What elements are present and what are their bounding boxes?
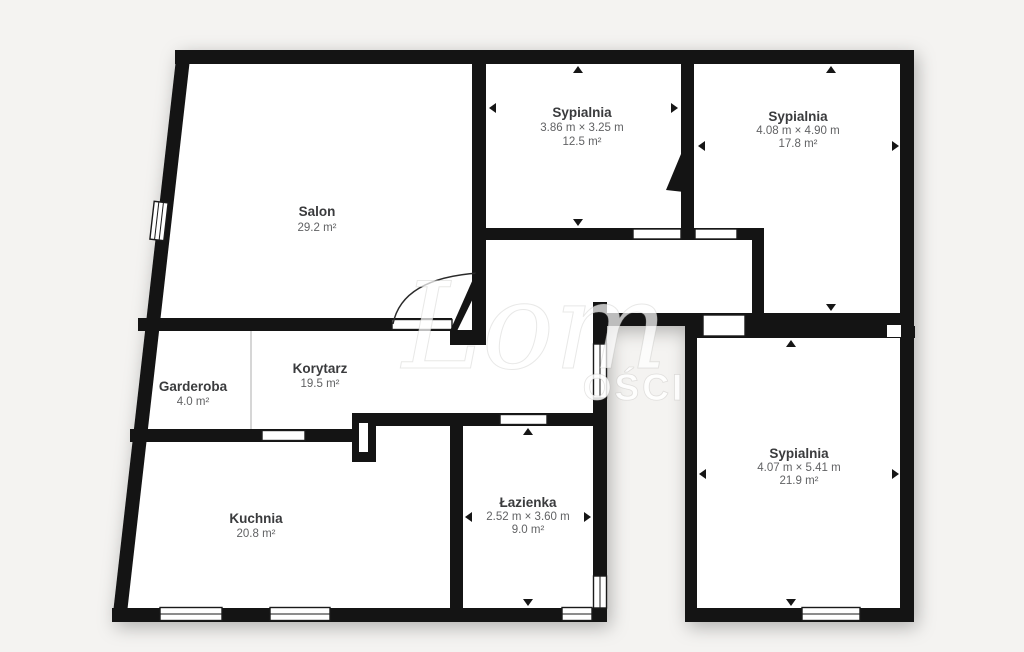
room-dims: 2.52 m × 3.60 m <box>486 511 569 523</box>
room-area: 17.8 m² <box>779 138 818 150</box>
floor-plan-canvas: Salon 29.2 m² Sypialnia 3.86 m × 3.25 m … <box>0 0 1024 652</box>
room-area: 29.2 m² <box>298 222 337 234</box>
room-name: Korytarz <box>293 361 348 376</box>
room-area: 19.5 m² <box>301 378 340 390</box>
room-name: Sypialnia <box>769 446 829 461</box>
room-dims: 3.86 m × 3.25 m <box>540 122 623 134</box>
rightwing-bottom-wall <box>685 608 914 622</box>
watermark-caps-text: OŚCI <box>583 366 685 408</box>
room-label-kuchnia: Kuchnia 20.8 m² <box>229 511 283 540</box>
kuchnia-door-opening <box>262 431 305 441</box>
bedroom1-door-opening <box>633 229 681 239</box>
room-area: 9.0 m² <box>512 524 545 536</box>
bedroom1-bedroom2-wall <box>681 50 694 238</box>
room-name: Sypialnia <box>552 105 612 120</box>
rightwing-left-wall <box>685 326 697 622</box>
watermark: Lom OŚCI <box>400 258 685 408</box>
room-dims: 4.08 m × 4.90 m <box>756 125 839 137</box>
room-name: Garderoba <box>159 379 228 394</box>
top-wall <box>175 50 914 64</box>
wall-notch <box>887 325 901 337</box>
room-label-korytarz: Korytarz 19.5 m² <box>293 361 348 390</box>
lazienka-door-opening <box>500 415 547 425</box>
room-area: 20.8 m² <box>237 528 276 540</box>
bedroom2-door-opening <box>695 229 737 239</box>
vent-shaft-cavity <box>359 423 368 452</box>
room-area: 12.5 m² <box>563 136 602 148</box>
hall-right-wall <box>752 228 764 326</box>
kuchnia-top-wall <box>130 429 353 442</box>
room-dims: 4.07 m × 5.41 m <box>757 462 840 474</box>
lazienka-top-wall <box>353 413 607 426</box>
room-area: 4.0 m² <box>177 396 210 408</box>
room-name: Sypialnia <box>768 109 828 124</box>
bedroom3-door-opening <box>703 315 745 336</box>
room-name: Kuchnia <box>229 511 283 526</box>
room-area: 21.9 m² <box>780 475 819 487</box>
kuchnia-lazienka-wall <box>450 413 463 622</box>
room-name: Salon <box>299 204 336 219</box>
rightwing-right-wall <box>900 50 914 622</box>
room-name: Łazienka <box>499 495 557 510</box>
